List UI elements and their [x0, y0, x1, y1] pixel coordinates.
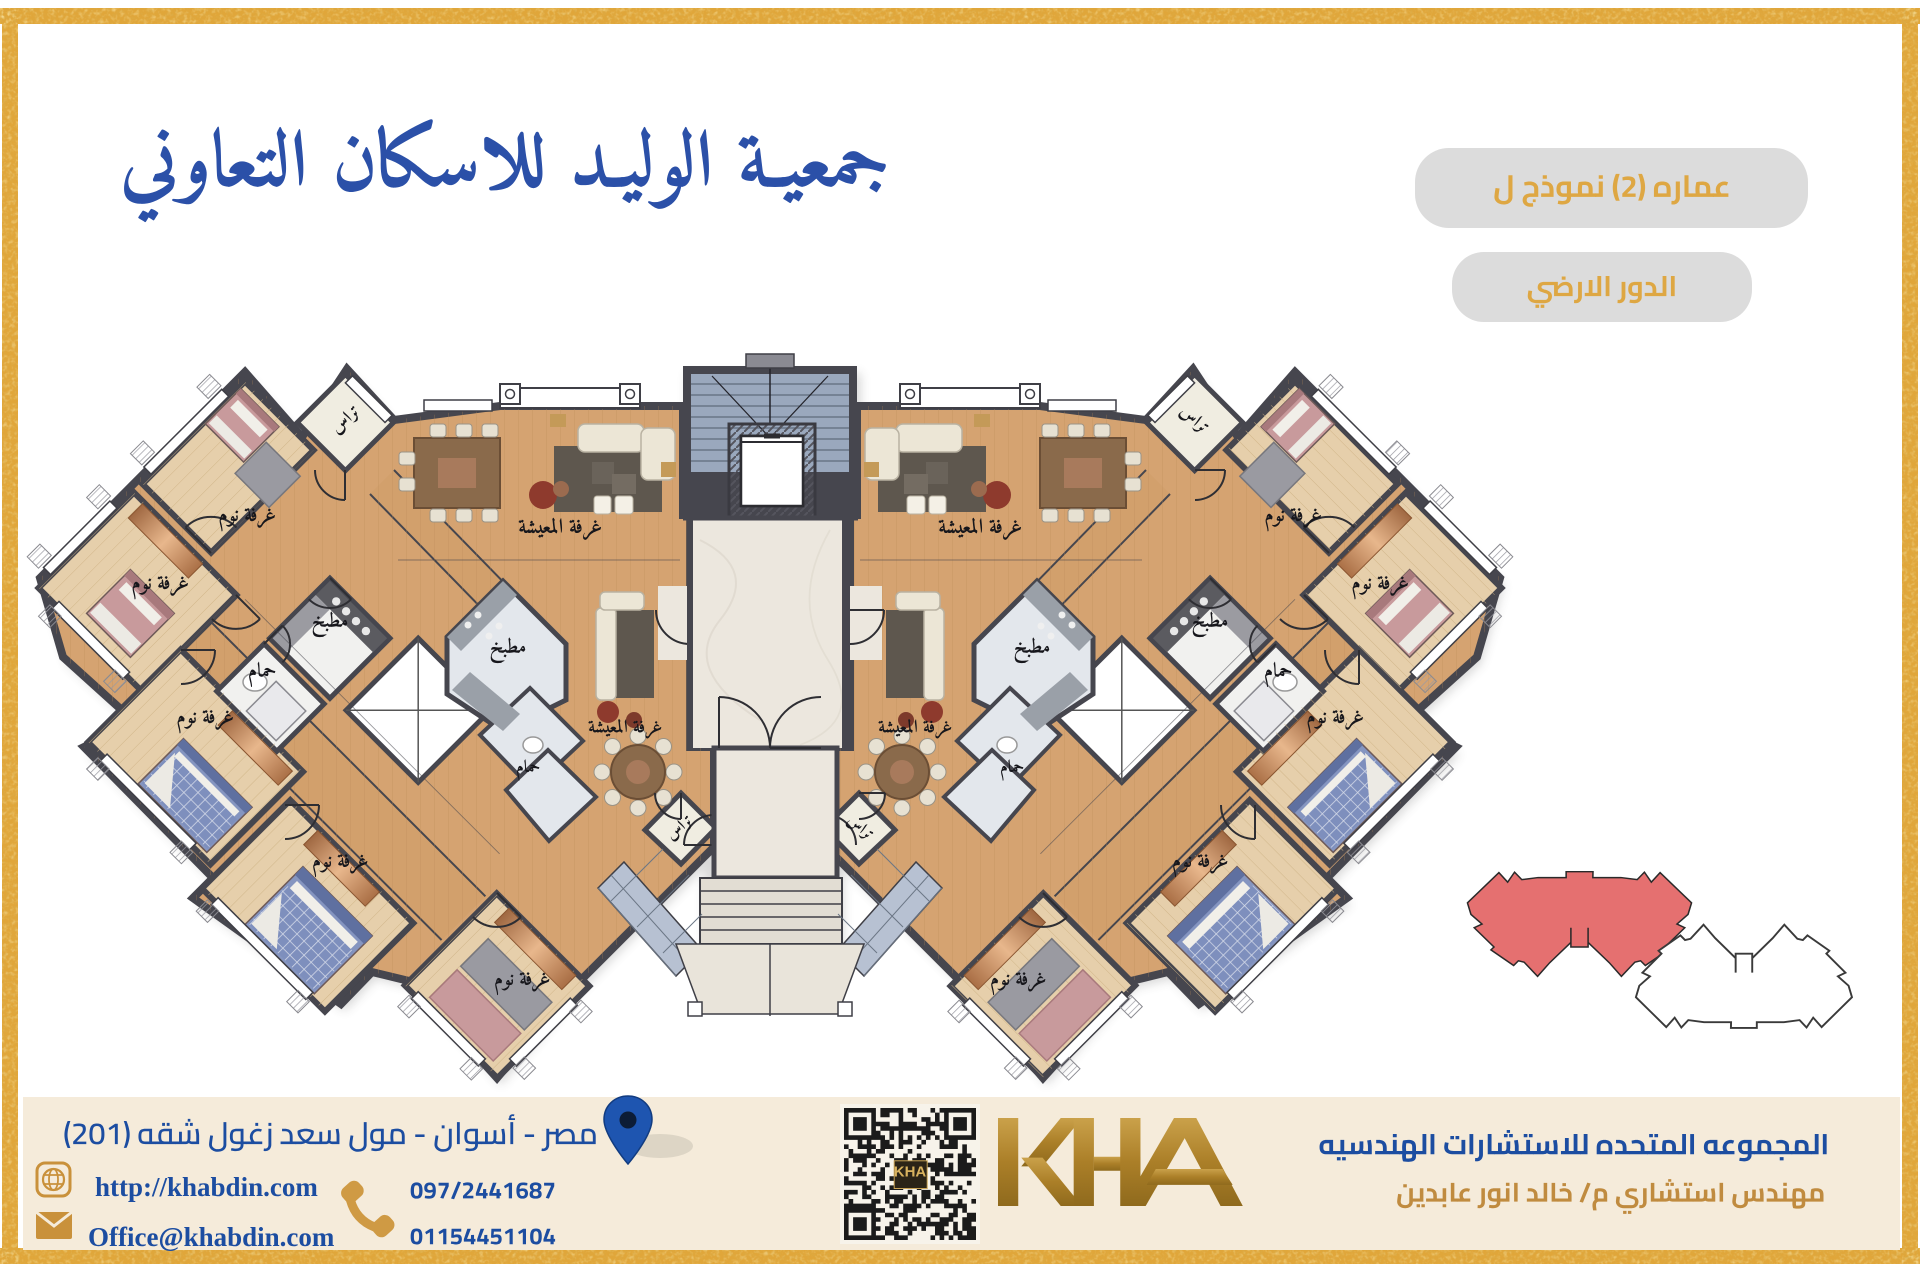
svg-text:Office@khabdin.com: Office@khabdin.com: [88, 1222, 335, 1252]
svg-text:http://khabdin.com: http://khabdin.com: [95, 1172, 318, 1202]
svg-text:KHA: KHA: [894, 1164, 927, 1181]
